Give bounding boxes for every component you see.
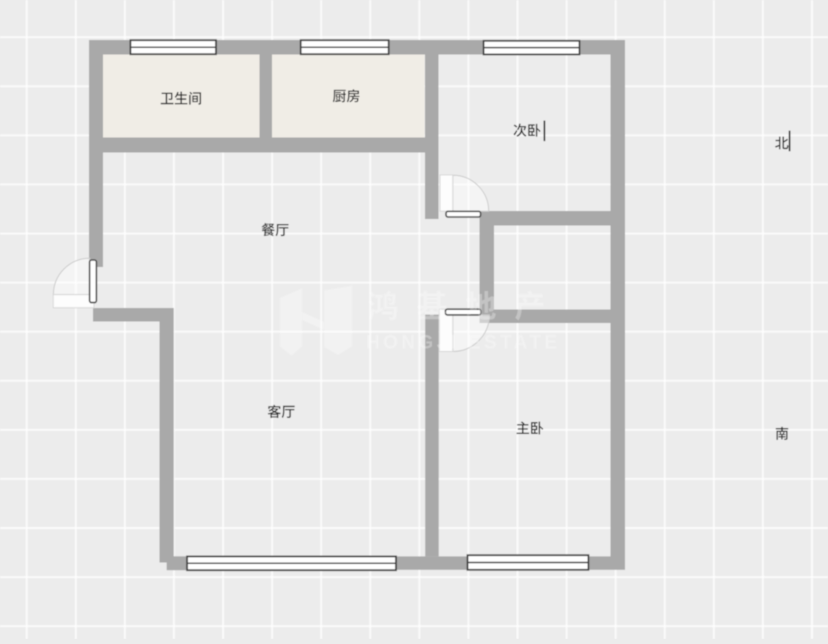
svg-text:HONGJI ESTATE: HONGJI ESTATE (366, 333, 560, 354)
